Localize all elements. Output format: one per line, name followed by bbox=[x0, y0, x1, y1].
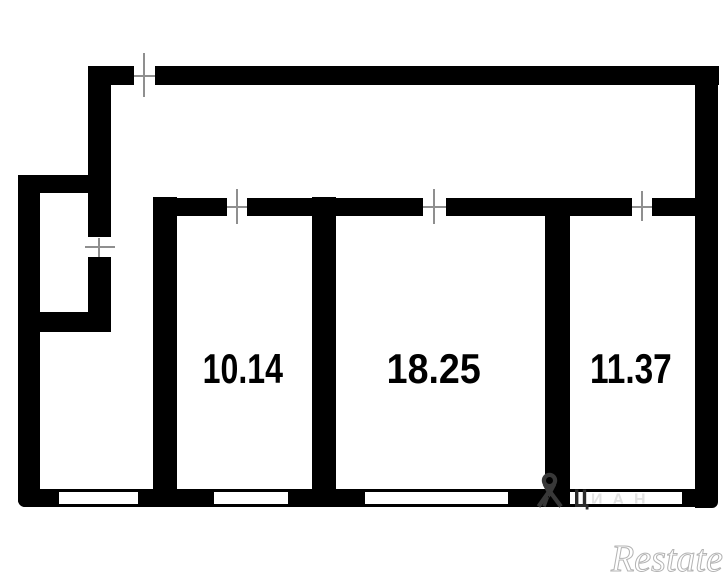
svg-text:18.25: 18.25 bbox=[387, 346, 481, 392]
svg-text:Restate: Restate bbox=[610, 538, 723, 575]
svg-text:ИАН: ИАН bbox=[591, 492, 656, 509]
svg-text:10.14: 10.14 bbox=[203, 345, 283, 392]
svg-text:11.37: 11.37 bbox=[590, 346, 672, 392]
